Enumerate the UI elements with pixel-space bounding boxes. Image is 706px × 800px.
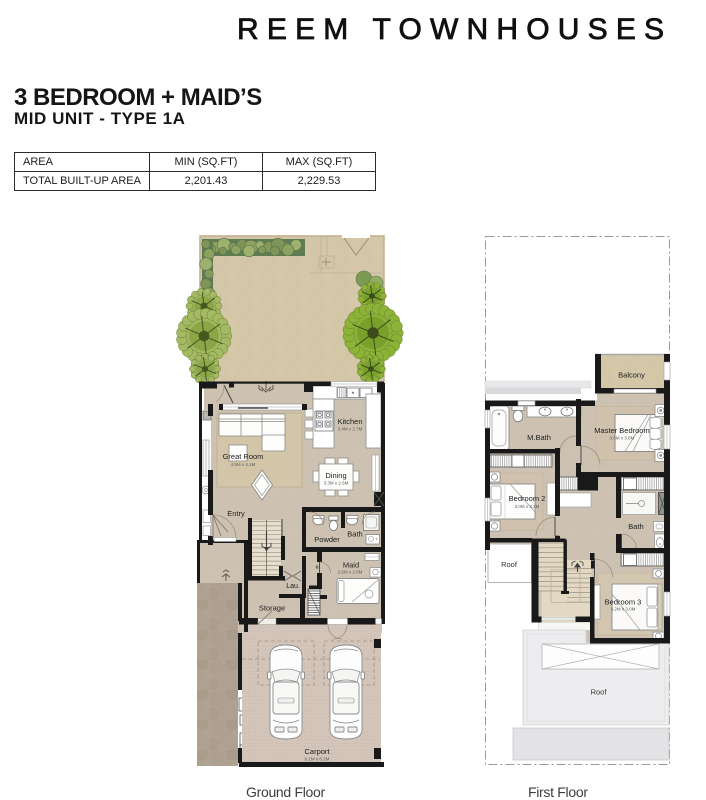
svg-text:4.5M x 4.1M: 4.5M x 4.1M bbox=[231, 462, 256, 467]
svg-text:3.6M x 3.6M: 3.6M x 3.6M bbox=[610, 436, 635, 441]
svg-text:Bath: Bath bbox=[628, 522, 643, 531]
svg-text:3.4M x 2.7M: 3.4M x 2.7M bbox=[338, 427, 363, 432]
svg-text:Roof: Roof bbox=[501, 560, 518, 569]
svg-text:Kitchen: Kitchen bbox=[337, 417, 362, 426]
svg-text:Bedroom 3: Bedroom 3 bbox=[605, 598, 642, 607]
svg-text:3.0M x 3.2M: 3.0M x 3.2M bbox=[515, 504, 540, 509]
svg-text:Maid: Maid bbox=[343, 561, 359, 570]
svg-text:Powder: Powder bbox=[314, 535, 340, 544]
svg-text:Roof: Roof bbox=[591, 688, 608, 697]
svg-text:Entry: Entry bbox=[227, 509, 245, 518]
svg-text:6.1M x 6.2M: 6.1M x 6.2M bbox=[305, 757, 330, 762]
svg-text:Great Room: Great Room bbox=[223, 452, 264, 461]
svg-text:3.2M x 3.0M: 3.2M x 3.0M bbox=[611, 607, 636, 612]
svg-text:Bath: Bath bbox=[347, 530, 362, 539]
svg-text:Carport: Carport bbox=[304, 747, 330, 756]
svg-text:M.Bath: M.Bath bbox=[527, 433, 551, 442]
svg-text:2.6M x 2.9M: 2.6M x 2.9M bbox=[338, 570, 363, 575]
svg-text:3.3M x 2.6M: 3.3M x 2.6M bbox=[324, 481, 349, 486]
svg-text:Balcony: Balcony bbox=[618, 371, 645, 380]
svg-text:Dining: Dining bbox=[325, 471, 346, 480]
svg-text:Lau.: Lau. bbox=[286, 583, 300, 590]
svg-text:Master Bedroom: Master Bedroom bbox=[594, 426, 649, 435]
svg-text:Storage: Storage bbox=[259, 604, 285, 613]
svg-text:Bedroom 2: Bedroom 2 bbox=[509, 494, 546, 503]
